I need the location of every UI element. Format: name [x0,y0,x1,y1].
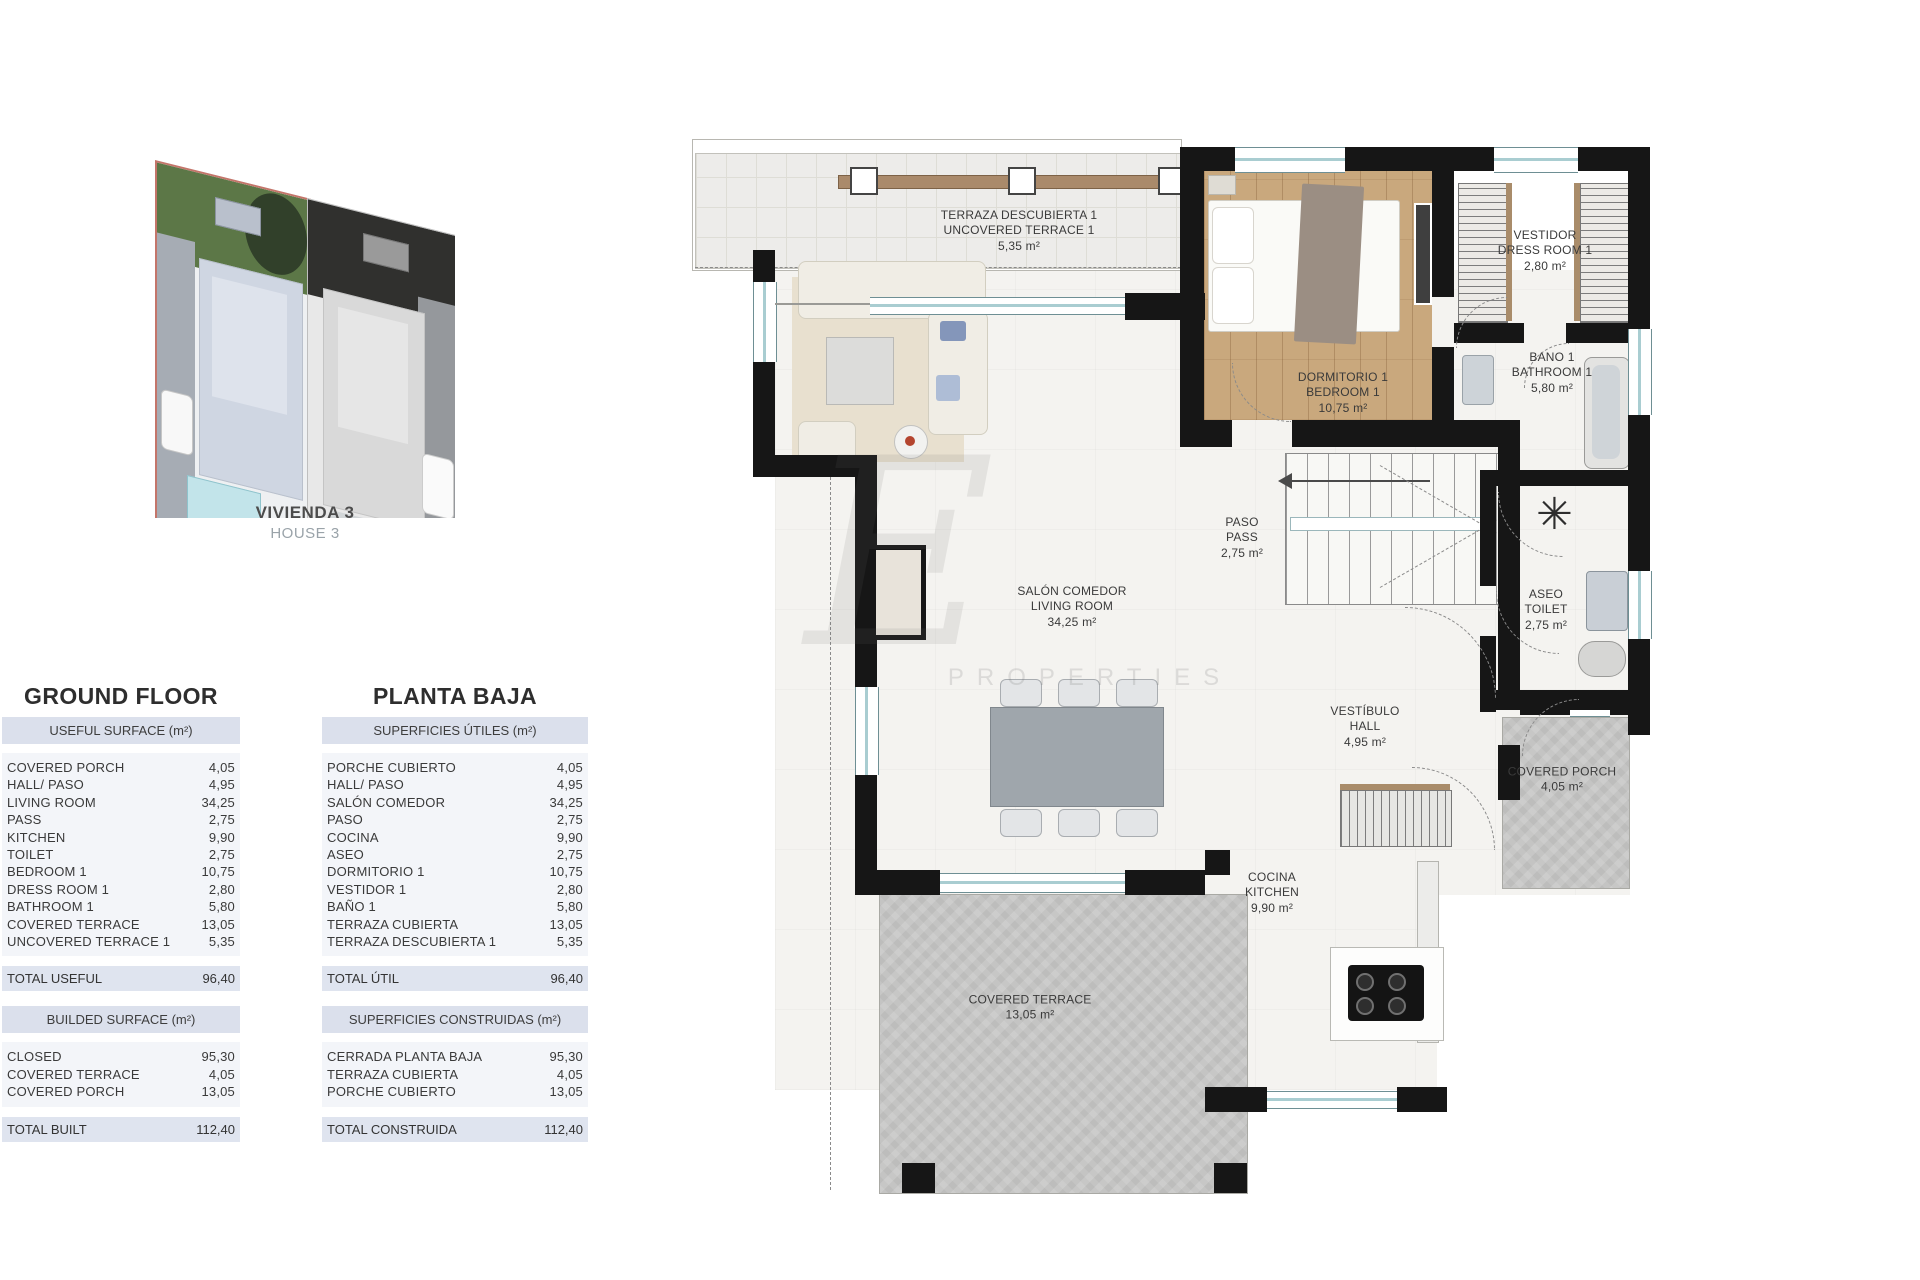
row-label: BEDROOM 1 [7,863,87,880]
row-label: COCINA [327,829,379,846]
bathroom-sink [1462,355,1494,405]
row-value: 4,95 [557,776,583,793]
row-value: 5,80 [209,898,235,915]
site-plan-thumbnail [155,128,455,518]
table-row: KITCHEN9,90 [7,829,235,846]
room-area: 5,35 m² [941,239,1097,254]
row-value: 5,35 [557,933,583,950]
row-value: 95,30 [201,1048,235,1065]
dining-chair [1058,809,1100,837]
wall-segment [1205,850,1230,875]
room-area: 10,75 m² [1298,401,1388,416]
total-value: 112,40 [196,1122,235,1137]
table-row: COCINA9,90 [327,829,583,846]
room-name-en: DRESS ROOM 1 [1498,243,1592,258]
room-label-bathroom: BANO 1 BATHROOM 1 5,80 m² [1512,350,1592,396]
table-row: ASEO2,75 [327,846,583,863]
room-area: 13,05 m² [969,1008,1092,1023]
total-value: 96,40 [202,971,235,986]
wall-segment [1432,147,1454,297]
room-label-uncovered-terrace: TERRAZA DESCUBIERTA 1 UNCOVERED TERRACE … [941,208,1097,254]
pergola-post [1008,167,1036,195]
total-row: TOTAL ÚTIL96,40 [322,966,588,991]
room-area: 2,75 m² [1221,546,1263,561]
highlighted-parcel [155,160,311,518]
room-area: 5,80 m² [1512,381,1592,396]
window [1267,1091,1397,1109]
car [161,388,193,456]
room-label-dress-room: VESTIDOR DRESS ROOM 1 2,80 m² [1498,228,1592,274]
dining-chair [1116,809,1158,837]
row-label: PASS [7,811,42,828]
row-label: BATHROOM 1 [7,898,94,915]
row-value: 13,05 [201,916,235,933]
row-value: 4,05 [209,759,235,776]
room-name-es: VESTÍBULO [1330,704,1399,719]
wall-segment [1454,147,1494,171]
room-name-es: PASO [1221,515,1263,530]
section-header: SUPERFICIES ÚTILES (m²) [322,717,588,744]
table-row: BEDROOM 110,75 [7,863,235,880]
window [1628,571,1652,639]
bed-throw [1294,183,1364,344]
total-row: TOTAL BUILT112,40 [2,1117,240,1142]
row-label: PORCHE CUBIERTO [327,1083,456,1100]
wall-niche [871,545,926,640]
room-name-en: BEDROOM 1 [1298,385,1388,400]
covered-terrace-floor [879,894,1248,1194]
pergola-post [850,167,878,195]
row-value: 9,90 [557,829,583,846]
window [855,687,879,775]
pillow [1212,207,1254,264]
dining-chair [1116,679,1158,707]
room-name-es: VESTIDOR [1498,228,1592,243]
section-header: BUILDED SURFACE (m²) [2,1006,240,1033]
threshold-line [775,303,870,305]
room-name-es: COCINA [1245,870,1299,885]
room-label-living-room: SALÓN COMEDOR LIVING ROOM 34,25 m² [1017,584,1126,630]
table-rows: COVERED PORCH4,05 HALL/ PASO4,95 LIVING … [2,753,240,956]
window [1628,329,1652,415]
row-value: 2,75 [209,846,235,863]
wall-segment [1292,420,1454,447]
wall-segment [1180,420,1232,447]
row-value: 2,80 [557,881,583,898]
table-row: PORCHE CUBIERTO13,05 [327,1083,583,1100]
decor-bowl [905,436,915,446]
row-label: PORCHE CUBIERTO [327,759,456,776]
row-value: 13,05 [549,916,583,933]
wall-segment [1566,323,1628,343]
burner [1388,997,1406,1015]
toilet-sink [1586,571,1628,631]
table-row: CERRADA PLANTA BAJA95,30 [327,1048,583,1065]
row-value: 5,80 [557,898,583,915]
room-label-bedroom: DORMITORIO 1 BEDROOM 1 10,75 m² [1298,370,1388,416]
table-row: COVERED TERRACE13,05 [7,916,235,933]
window [1235,147,1345,173]
dining-chair [1058,679,1100,707]
wall-segment [1628,171,1650,329]
row-label: UNCOVERED TERRACE 1 [7,933,170,950]
toilet [1578,641,1626,677]
room-name-en: COVERED TERRACE [969,993,1092,1008]
stair-arrow-icon [1278,473,1292,489]
room-area: 2,80 m² [1498,259,1592,274]
row-value: 2,80 [209,881,235,898]
wall-segment [753,455,877,477]
bathtub-basin [1592,365,1620,459]
wall-segment [1180,147,1204,447]
table-row: COVERED PORCH13,05 [7,1083,235,1100]
row-value: 2,75 [557,846,583,863]
total-row: TOTAL CONSTRUIDA112,40 [322,1117,588,1142]
room-name-en: HALL [1330,719,1399,734]
room-area: 34,25 m² [1017,615,1126,630]
wall-segment [1578,147,1650,171]
wall-segment [1205,1087,1267,1112]
row-value: 10,75 [549,863,583,880]
room-name-en: UNCOVERED TERRACE 1 [941,223,1097,238]
row-label: TERRAZA DESCUBIERTA 1 [327,933,496,950]
wall-segment [1628,415,1650,571]
total-label: TOTAL CONSTRUIDA [327,1122,457,1137]
room-name-es: SALÓN COMEDOR [1017,584,1126,599]
room-area: 4,05 m² [1508,780,1617,795]
row-label: DORMITORIO 1 [327,863,425,880]
table-row: PASO2,75 [327,811,583,828]
window [753,282,777,362]
room-name-es: BANO 1 [1512,350,1592,365]
row-value: 4,05 [209,1066,235,1083]
house-name-en: HOUSE 3 [155,525,455,542]
sliding-door [870,297,1125,315]
row-label: TERRAZA CUBIERTA [327,916,458,933]
row-value: 4,05 [557,759,583,776]
table-row: HALL/ PASO4,95 [327,776,583,793]
row-label: COVERED PORCH [7,759,124,776]
row-value: 5,35 [209,933,235,950]
room-label-pass: PASO PASS 2,75 m² [1221,515,1263,561]
table-row: TOILET2,75 [7,846,235,863]
row-label: ASEO [327,846,364,863]
row-label: COVERED PORCH [7,1083,124,1100]
table-row: PASS2,75 [7,811,235,828]
pillar [902,1163,935,1193]
room-name-en: BATHROOM 1 [1512,365,1592,380]
table-rows: CLOSED95,30 COVERED TERRACE4,05 COVERED … [2,1042,240,1106]
room-label-covered-terrace: COVERED TERRACE 13,05 m² [969,993,1092,1024]
row-label: KITCHEN [7,829,65,846]
cushion [940,321,966,341]
total-label: TOTAL BUILT [7,1122,87,1137]
table-row: SALÓN COMEDOR34,25 [327,794,583,811]
burner [1356,997,1374,1015]
wall-segment [855,775,877,877]
row-label: CLOSED [7,1048,62,1065]
row-value: 95,30 [549,1048,583,1065]
wall-art [1414,203,1432,305]
room-name-en: PASS [1221,530,1263,545]
table-row: BATHROOM 15,80 [7,898,235,915]
wall-segment [1628,695,1650,735]
row-label: COVERED TERRACE [7,1066,140,1083]
room-name-es: DORMITORIO 1 [1298,370,1388,385]
overhang-dashed-line [830,457,831,1190]
surface-table-spanish: PLANTA BAJA SUPERFICIES ÚTILES (m²) PORC… [322,683,588,1142]
window [1494,147,1578,173]
floor-plan: ✳ [690,125,1660,1195]
table-row: CLOSED95,30 [7,1048,235,1065]
row-value: 13,05 [549,1083,583,1100]
row-label: CERRADA PLANTA BAJA [327,1048,482,1065]
table-row: TERRAZA CUBIERTA13,05 [327,916,583,933]
coffee-table [826,337,894,405]
table-row: DORMITORIO 110,75 [327,863,583,880]
table-row: COVERED TERRACE4,05 [7,1066,235,1083]
room-label-toilet: ASEO TOILET 2,75 m² [1525,587,1568,633]
table-row: COVERED PORCH4,05 [7,759,235,776]
table-title: PLANTA BAJA [322,683,588,710]
sliding-door [940,873,1125,893]
table-row: TERRAZA CUBIERTA4,05 [327,1066,583,1083]
room-label-kitchen: COCINA KITCHEN 9,90 m² [1245,870,1299,916]
room-name-en: LIVING ROOM [1017,599,1126,614]
row-label: HALL/ PASO [7,776,84,793]
cushion [936,375,960,401]
burner [1388,973,1406,991]
total-row: TOTAL USEFUL96,40 [2,966,240,991]
adjacent-parcel [307,198,455,518]
house-name-es: VIVIENDA 3 [155,503,455,523]
row-value: 2,75 [209,811,235,828]
wall-segment [1628,639,1650,697]
wall-segment [753,250,775,282]
table-title: GROUND FLOOR [2,683,240,710]
row-label: VESTIDOR 1 [327,881,406,898]
room-name-es: TERRAZA DESCUBIERTA 1 [941,208,1097,223]
row-value: 34,25 [201,794,235,811]
room-area: 2,75 m² [1525,618,1568,633]
row-value: 2,75 [557,811,583,828]
wall-segment [1125,870,1205,895]
row-label: BAÑO 1 [327,898,376,915]
row-label: TERRAZA CUBIERTA [327,1066,458,1083]
row-value: 34,25 [549,794,583,811]
section-header: SUPERFICIES CONSTRUIDAS (m²) [322,1006,588,1033]
total-value: 96,40 [550,971,583,986]
room-area: 4,95 m² [1330,735,1399,750]
burner [1356,973,1374,991]
row-label: TOILET [7,846,53,863]
wall-segment [1397,1087,1447,1112]
room-name-en: COVERED PORCH [1508,765,1617,780]
table-row: HALL/ PASO4,95 [7,776,235,793]
table-row: TERRAZA DESCUBIERTA 15,35 [327,933,583,950]
wall-segment [753,362,775,457]
dining-table [990,707,1164,807]
nightstand [1208,175,1236,195]
surface-table-english: GROUND FLOOR USEFUL SURFACE (m²) COVERED… [2,683,240,1142]
wall-segment [1454,420,1520,447]
pillar [1214,1163,1247,1193]
row-value: 9,90 [209,829,235,846]
table-row: LIVING ROOM34,25 [7,794,235,811]
row-value: 4,95 [209,776,235,793]
stair-rail [1290,517,1492,531]
table-row: DRESS ROOM 12,80 [7,881,235,898]
table-row: PORCHE CUBIERTO4,05 [327,759,583,776]
total-value: 112,40 [544,1122,583,1137]
row-label: COVERED TERRACE [7,916,140,933]
dining-chair [1000,679,1042,707]
row-value: 10,75 [201,863,235,880]
row-value: 4,05 [557,1066,583,1083]
table-row: BAÑO 15,80 [327,898,583,915]
roof-panel [212,276,287,415]
pillow [1212,267,1254,324]
wall-segment [855,870,940,895]
row-value: 13,05 [201,1083,235,1100]
room-name-es: ASEO [1525,587,1568,602]
room-name-en: TOILET [1525,602,1568,617]
table-row: VESTIDOR 12,80 [327,881,583,898]
dining-chair [1000,809,1042,837]
site-plan-caption: VIVIENDA 3 HOUSE 3 [155,503,455,542]
table-row: UNCOVERED TERRACE 15,35 [7,933,235,950]
roof-panel-grey [338,307,408,444]
wall-segment [1480,470,1496,586]
section-header: USEFUL SURFACE (m²) [2,717,240,744]
row-label: DRESS ROOM 1 [7,881,109,898]
room-label-covered-porch: COVERED PORCH 4,05 m² [1508,765,1617,796]
exterior-mask [1437,895,1652,1095]
total-label: TOTAL USEFUL [7,971,102,986]
table-rows: CERRADA PLANTA BAJA95,30 TERRAZA CUBIERT… [322,1042,588,1106]
table-rows: PORCHE CUBIERTO4,05 HALL/ PASO4,95 SALÓN… [322,753,588,956]
row-label: PASO [327,811,363,828]
room-area: 9,90 m² [1245,901,1299,916]
row-label: SALÓN COMEDOR [327,794,445,811]
room-name-en: KITCHEN [1245,885,1299,900]
room-label-hall: VESTÍBULO HALL 4,95 m² [1330,704,1399,750]
row-label: LIVING ROOM [7,794,96,811]
row-label: HALL/ PASO [327,776,404,793]
total-label: TOTAL ÚTIL [327,971,399,986]
